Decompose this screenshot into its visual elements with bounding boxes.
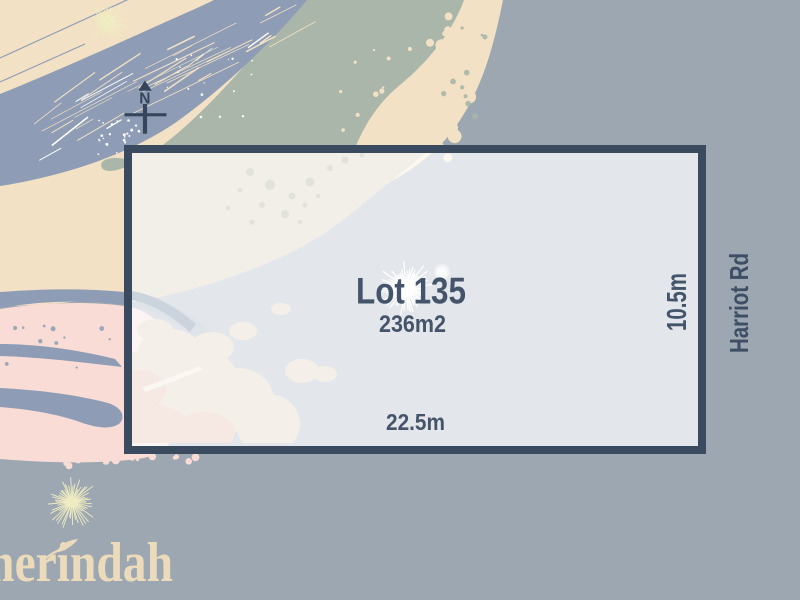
svg-text:Lot 135: Lot 135 (356, 270, 466, 312)
svg-text:236m2: 236m2 (379, 311, 446, 338)
svg-text:22.5m: 22.5m (386, 409, 445, 435)
svg-text:merindah: merindah (0, 532, 173, 594)
svg-text:Harriot Rd: Harriot Rd (724, 253, 754, 353)
svg-text:N: N (139, 91, 150, 108)
svg-text:10.5m: 10.5m (661, 273, 692, 331)
